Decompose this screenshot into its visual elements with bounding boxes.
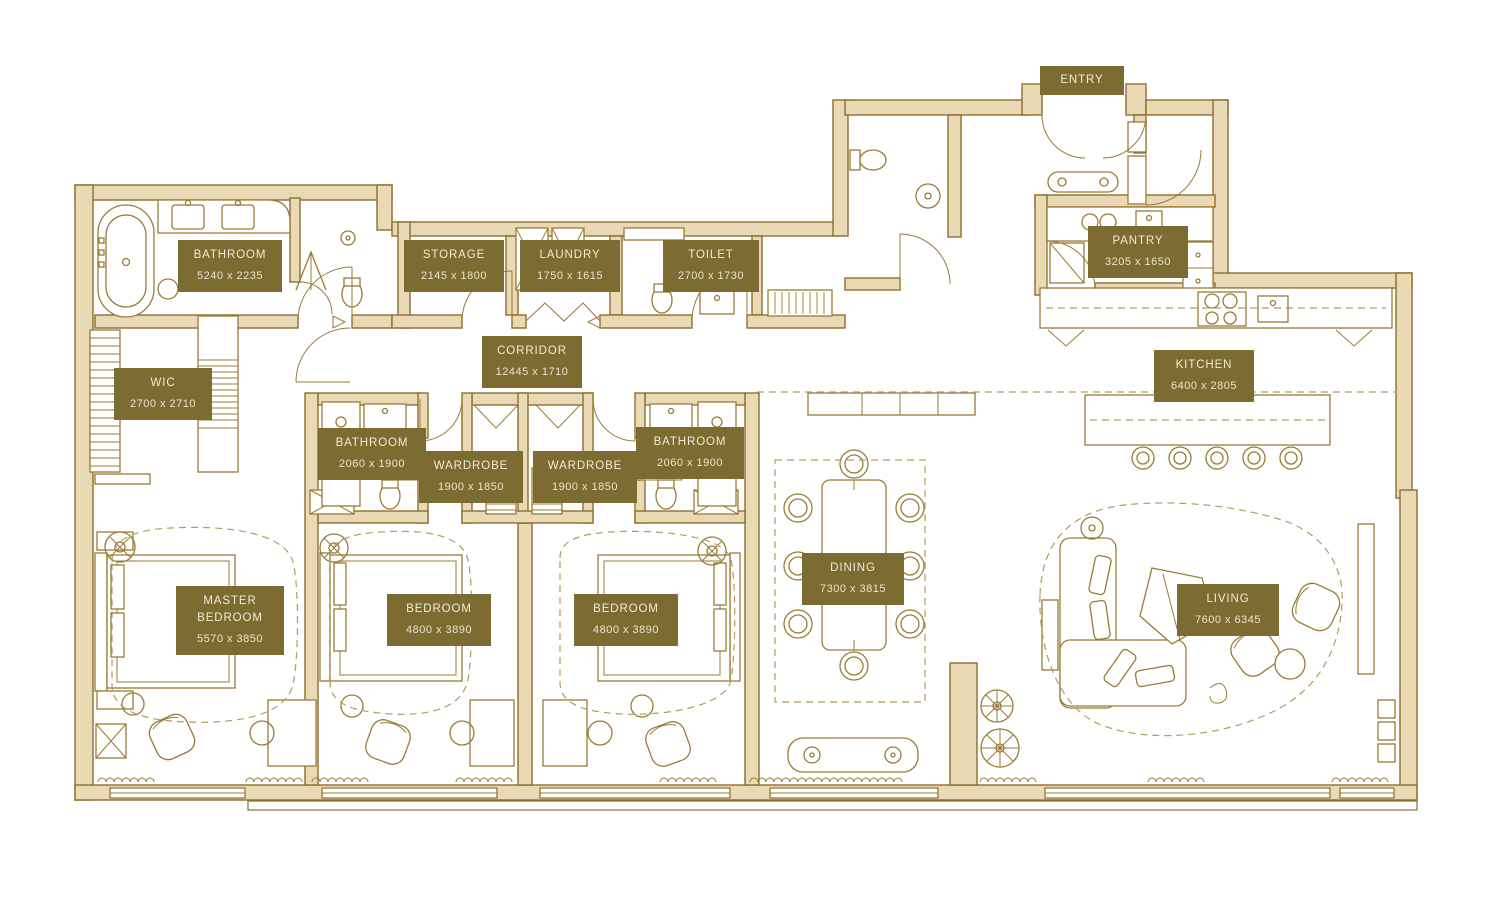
wc-door-arc (300, 282, 332, 314)
balcony-slab (248, 801, 1417, 810)
room-label-bedroom-2: BEDROOM 4800 x 3890 (574, 594, 678, 646)
room-label-corridor: CORRIDOR 12445 x 1710 (482, 336, 582, 388)
kitchen-counter (1040, 288, 1392, 346)
desk (543, 700, 587, 766)
desk (470, 700, 514, 766)
room-label-bedroom-1: BEDROOM 4800 x 3890 (387, 594, 491, 646)
decor-lamp-icon (1210, 683, 1227, 703)
room-label-pantry: PANTRY 3205 x 1650 (1088, 226, 1188, 278)
room-label-toilet: TOILET 2700 x 1730 (663, 240, 759, 292)
room-label-master-bedroom: MASTER BEDROOM 5570 x 3850 (176, 586, 284, 655)
floor-plan: ENTRY BATHROOM 5240 x 2235 STORAGE 2145 … (0, 0, 1486, 903)
room-label-wic: WIC 2700 x 2710 (114, 368, 212, 420)
room-label-kitchen: KITCHEN 6400 x 2805 (1154, 350, 1254, 402)
pouf-icon (1275, 649, 1305, 679)
kitchen-island (1085, 395, 1330, 469)
bar-stools (1132, 447, 1302, 469)
sideboard (808, 393, 975, 415)
curtain-squiggles (98, 778, 1388, 782)
room-label-bathroom-2: BATHROOM 2060 x 1900 (318, 428, 426, 480)
hall-closet (768, 290, 832, 316)
room-label-living: LIVING 7600 x 6345 (1177, 584, 1279, 636)
room-label-dining: DINING 7300 x 3815 (802, 553, 904, 605)
desk (268, 700, 316, 766)
floor-lamp-icon (1081, 517, 1103, 539)
room-label-entry: ENTRY (1040, 66, 1124, 95)
plant-icon (981, 690, 1019, 767)
room-label-bathroom-master: BATHROOM 5240 x 2235 (178, 240, 282, 292)
guest-toilet-fixtures (850, 150, 940, 208)
entry-bench (1048, 122, 1146, 204)
room-label-wardrobe-2: WARDROBE 1900 x 1850 (533, 451, 637, 503)
room-label-storage: STORAGE 2145 x 1800 (404, 240, 504, 292)
dining-console (788, 738, 918, 772)
basin-icon (916, 184, 940, 208)
bedroom2-seating (543, 695, 694, 770)
room-label-wardrobe-1: WARDROBE 1900 x 1850 (419, 451, 523, 503)
desk-chair (588, 721, 612, 745)
bathtub-icon (98, 205, 154, 317)
room-label-laundry: LAUNDRY 1750 x 1615 (520, 240, 620, 292)
toilet-icon (860, 150, 886, 170)
basin-icon (700, 290, 734, 314)
bifold-door (526, 303, 600, 321)
bedroom1-seating (341, 695, 514, 768)
room-label-bathroom-3: BATHROOM 2060 x 1900 (636, 427, 744, 479)
stool-icon (158, 279, 178, 299)
media-wall (1358, 524, 1395, 762)
